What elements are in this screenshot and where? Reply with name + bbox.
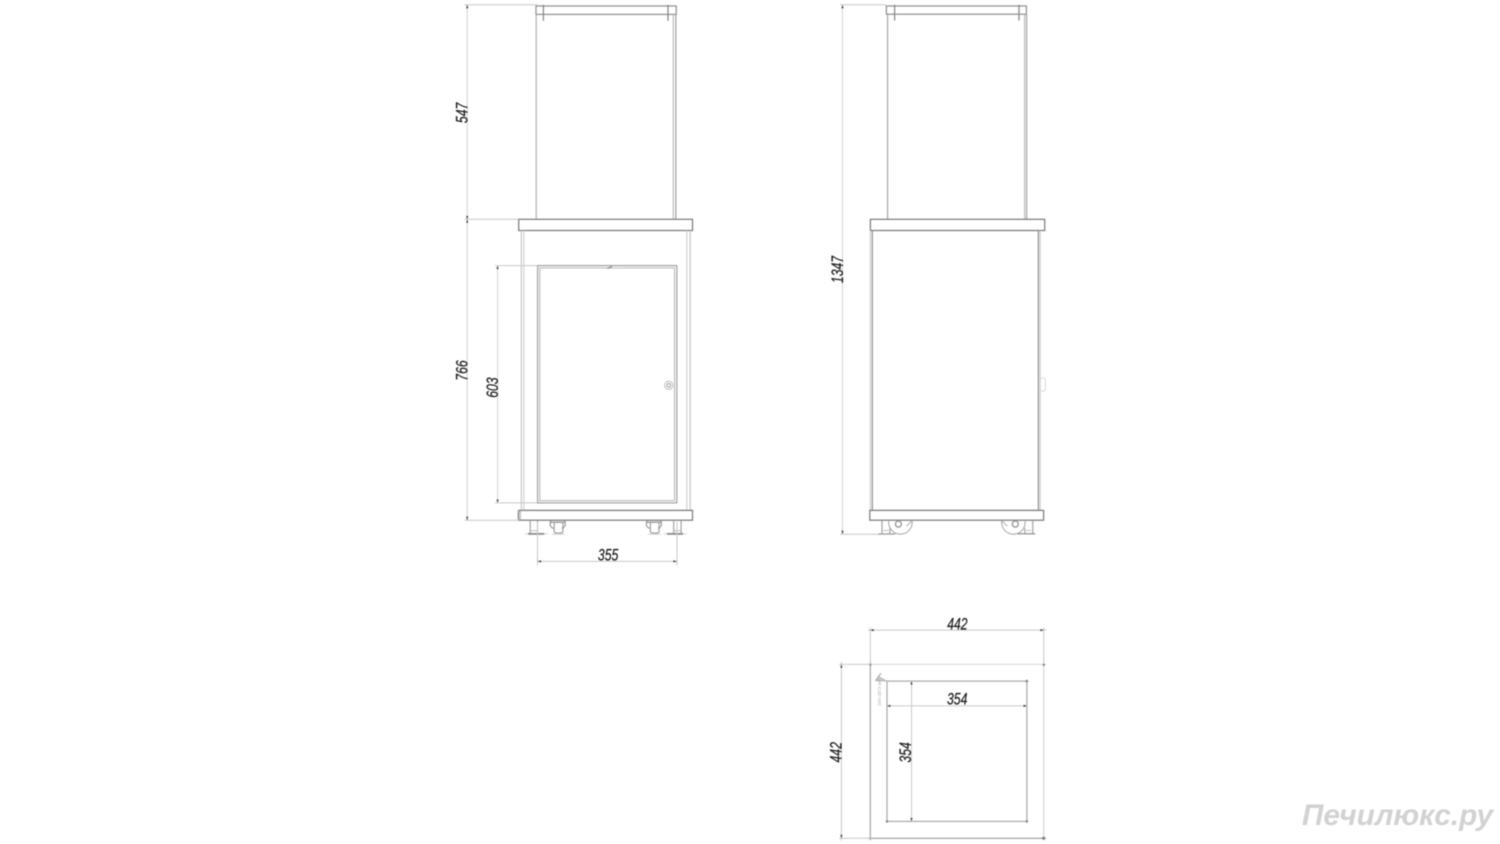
- svg-text:345-0872-м8: 345-0872-м8: [877, 679, 882, 706]
- svg-text:442: 442: [828, 741, 846, 762]
- svg-text:603: 603: [484, 377, 502, 398]
- svg-text:442: 442: [947, 616, 968, 634]
- svg-text:766: 766: [454, 360, 472, 381]
- svg-text:547: 547: [454, 102, 472, 123]
- svg-text:354: 354: [897, 742, 915, 762]
- svg-text:Печилюкс.ру: Печилюкс.ру: [1302, 799, 1495, 832]
- svg-text:354: 354: [947, 691, 967, 709]
- svg-text:355: 355: [598, 547, 619, 565]
- svg-text:1347: 1347: [829, 255, 847, 283]
